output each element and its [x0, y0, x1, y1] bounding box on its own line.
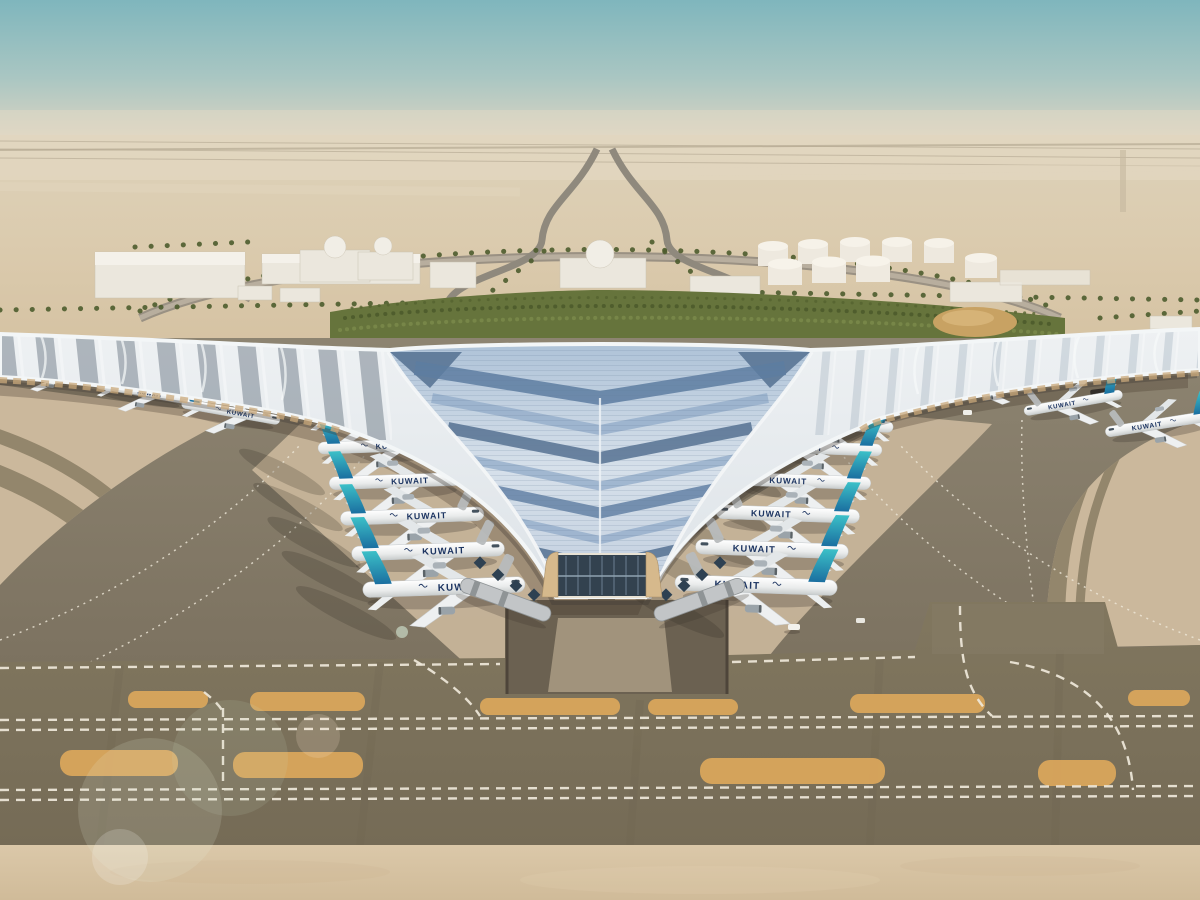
island	[480, 698, 620, 715]
scene-container: KUWAIT KUWAIT	[0, 0, 1200, 900]
ground-vehicle	[963, 410, 972, 415]
island	[700, 758, 885, 784]
trench-ramp	[548, 618, 672, 692]
island	[250, 692, 365, 711]
airport-rendering-svg: KUWAIT KUWAIT	[0, 0, 1200, 900]
dome	[586, 240, 614, 268]
dome	[374, 237, 392, 255]
island	[1038, 760, 1116, 786]
island	[850, 694, 985, 713]
ground-vehicle	[856, 618, 865, 623]
taxiway-connector-right	[932, 604, 1104, 654]
dome	[324, 236, 346, 258]
ground-vehicle	[788, 624, 800, 630]
island	[648, 699, 738, 715]
island	[1128, 690, 1190, 706]
tip-facade	[542, 552, 662, 597]
island	[128, 691, 208, 708]
